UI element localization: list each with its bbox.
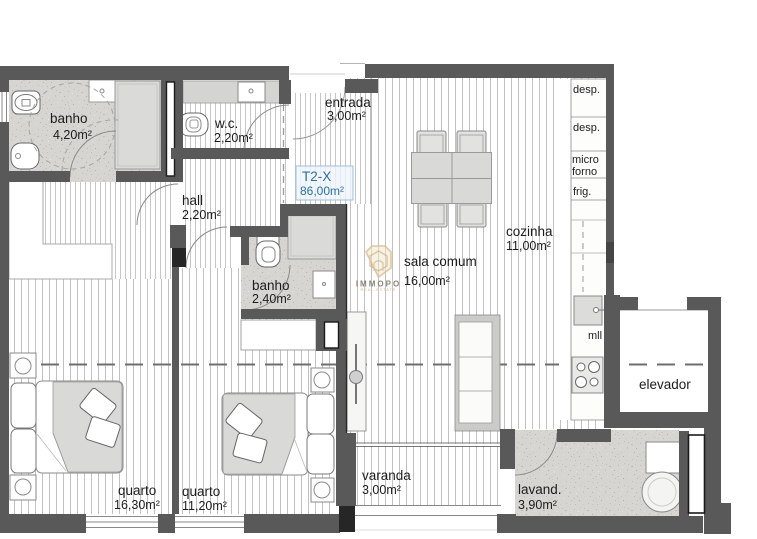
svg-text:banho: banho [50,111,88,126]
svg-text:3,00m²: 3,00m² [327,109,366,123]
svg-text:quarto: quarto [182,484,220,499]
svg-text:cozinha: cozinha [506,224,553,239]
svg-text:elevador: elevador [639,377,691,392]
svg-text:16,30m²: 16,30m² [114,498,160,512]
svg-text:3,90m²: 3,90m² [518,498,557,512]
svg-text:hall: hall [182,193,203,208]
svg-text:16,00m²: 16,00m² [404,274,450,288]
svg-text:sala comum: sala comum [404,254,477,269]
svg-text:quarto: quarto [118,483,156,498]
svg-text:micro: micro [572,154,599,166]
svg-text:varanda: varanda [362,468,411,483]
svg-text:frig.: frig. [573,186,591,198]
svg-text:mll: mll [588,330,602,342]
svg-text:2,40m²: 2,40m² [252,292,291,306]
svg-text:lavand.: lavand. [518,482,562,497]
svg-text:REAL ESTATE: REAL ESTATE [360,288,396,292]
svg-text:86,00m²: 86,00m² [300,184,344,198]
svg-text:2,20m²: 2,20m² [214,131,253,145]
svg-text:entrada: entrada [325,95,371,110]
svg-text:banho: banho [252,278,290,293]
svg-text:w.c.: w.c. [214,116,238,131]
svg-text:11,20m²: 11,20m² [182,499,227,513]
svg-text:desp.: desp. [573,84,600,96]
svg-text:3,00m²: 3,00m² [362,483,401,497]
svg-text:T2-X: T2-X [302,169,331,184]
svg-text:11,00m²: 11,00m² [506,239,551,253]
svg-text:4,20m²: 4,20m² [53,128,92,142]
svg-text:forno: forno [572,166,597,178]
svg-text:desp.: desp. [573,122,600,134]
svg-text:2,20m²: 2,20m² [182,208,221,222]
